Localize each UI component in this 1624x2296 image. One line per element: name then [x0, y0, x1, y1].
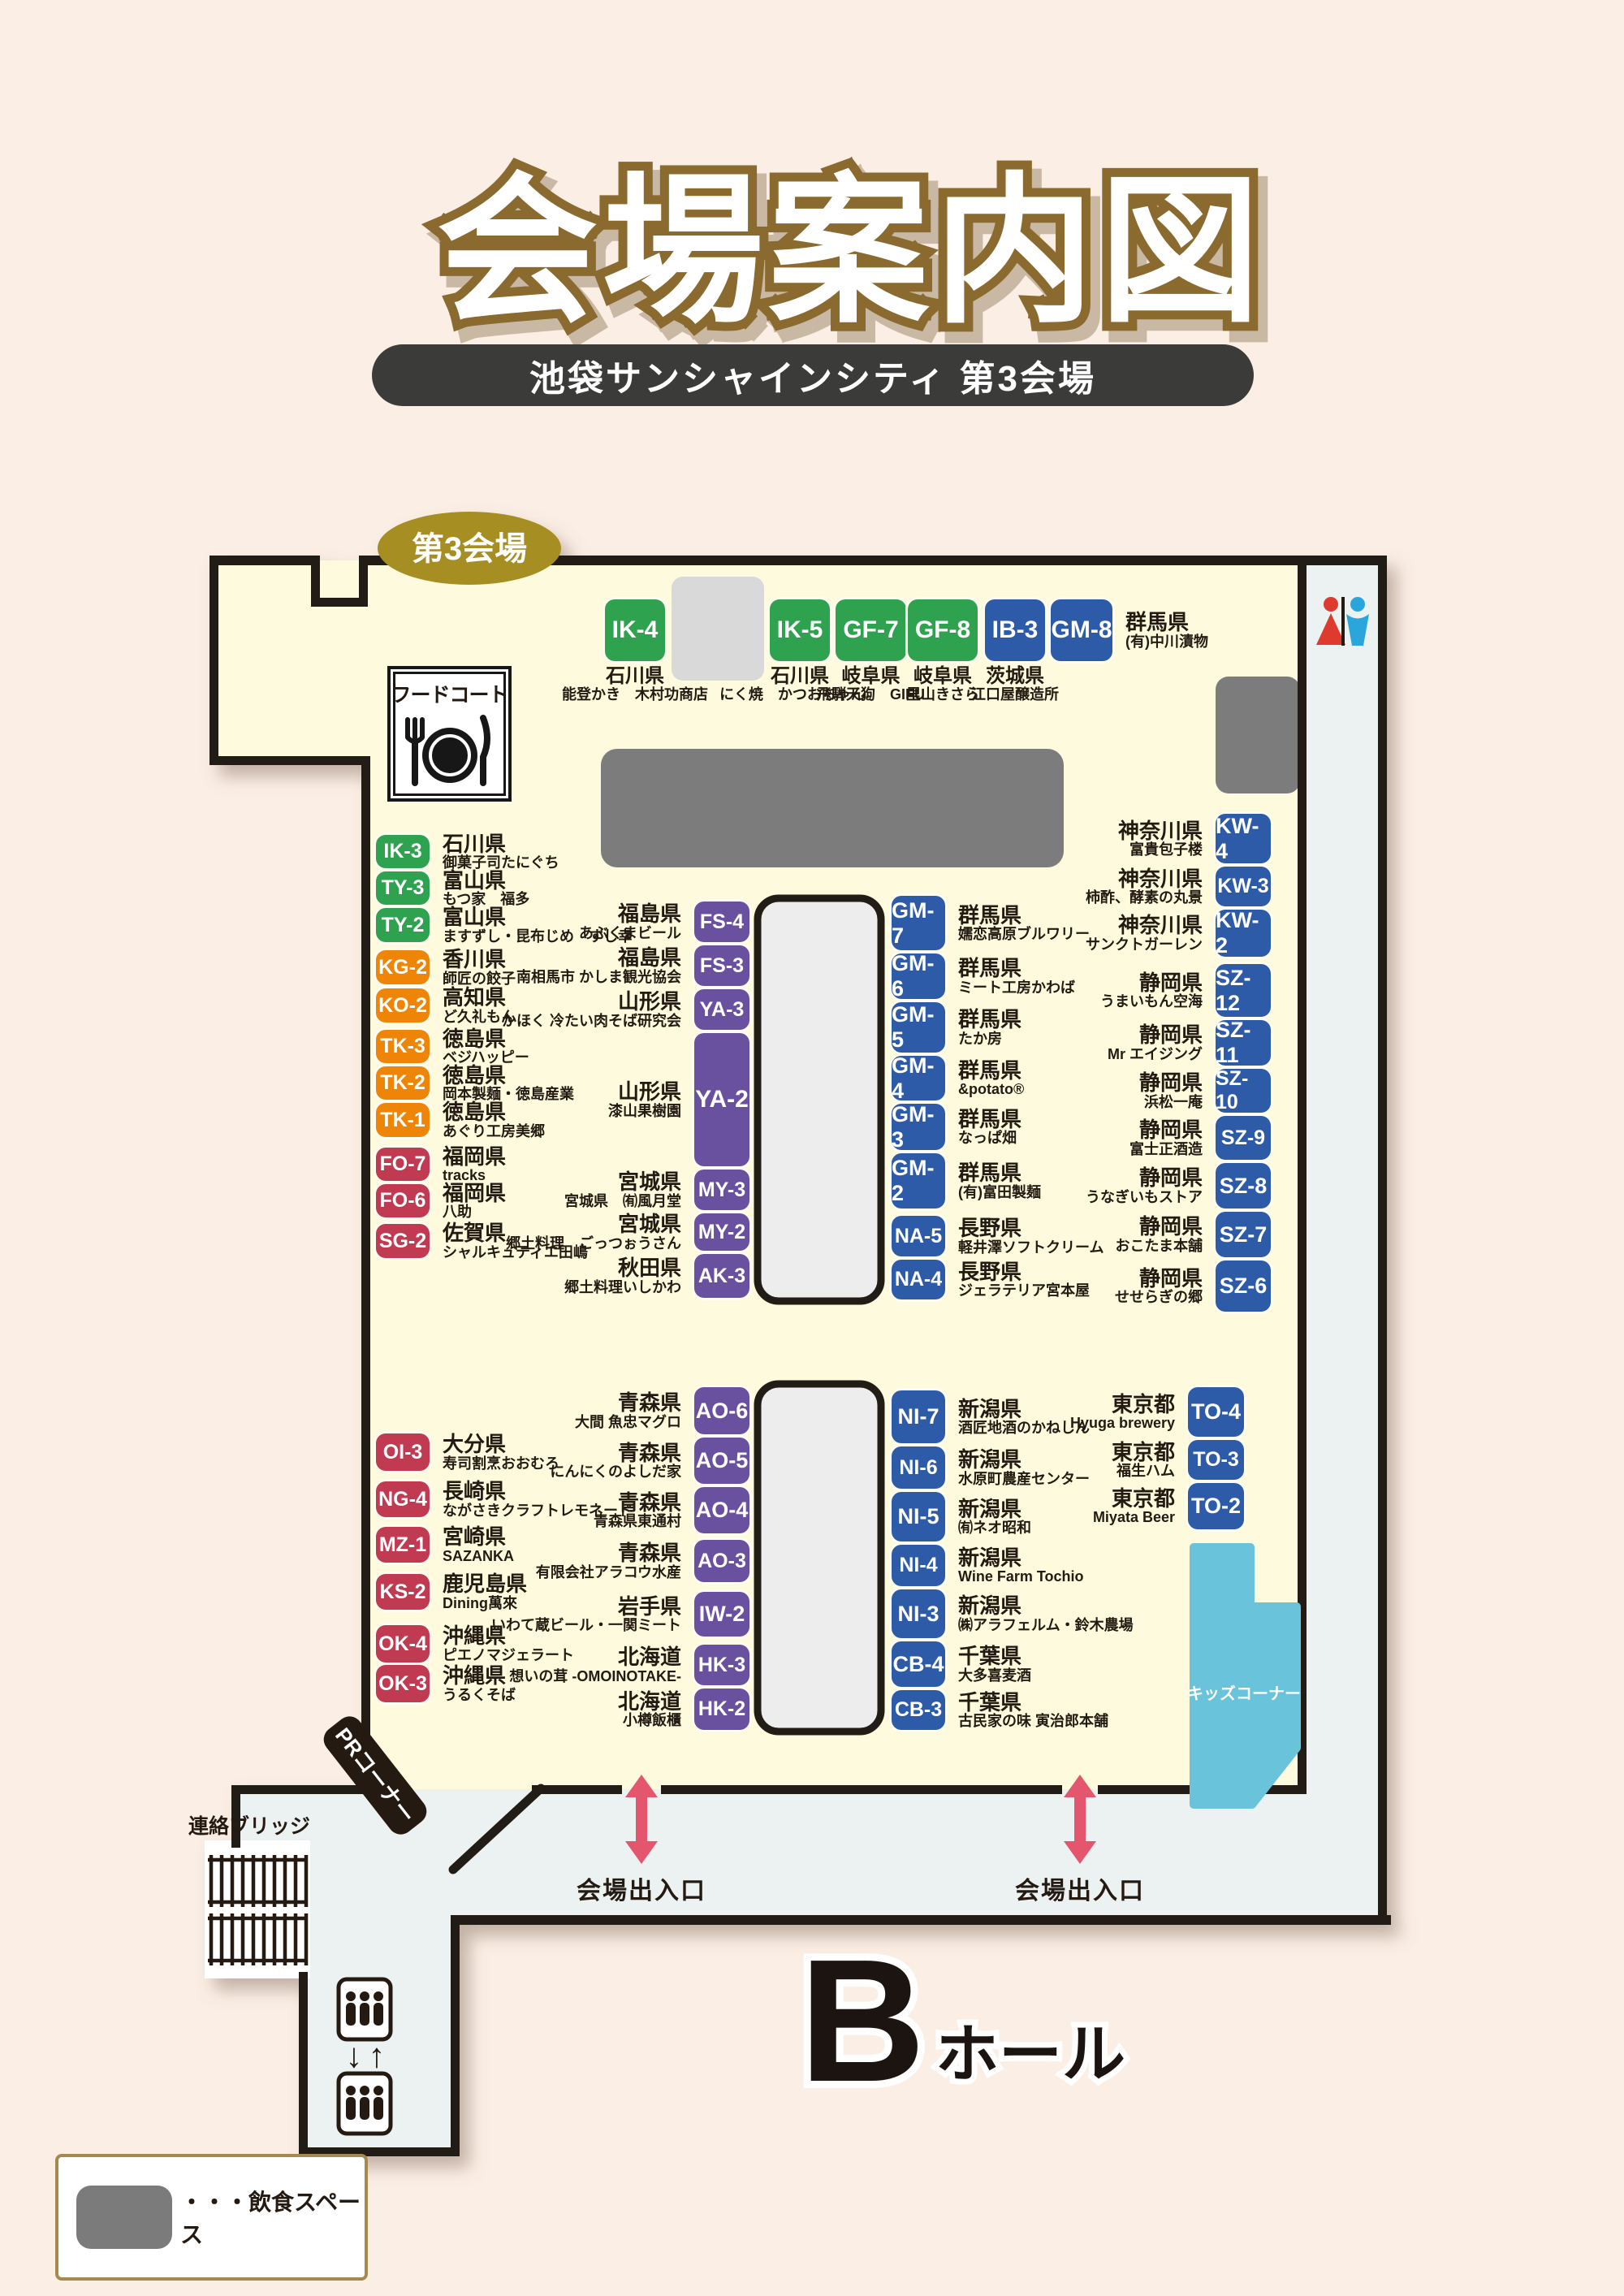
booth-label-IK-4: 石川県能登かき 木村功商店: [562, 666, 708, 703]
booth-prefecture: 静岡県: [1108, 1023, 1203, 1047]
svg-text:↓: ↓: [346, 2036, 363, 2074]
booth-OI-3[interactable]: OI-3: [376, 1433, 430, 1471]
booth-prefecture: 徳島県: [443, 1027, 529, 1050]
booth-prefecture: 群馬県: [958, 1008, 1021, 1031]
booth-label-NA-4: 長野県ジェラテリア宮本屋: [958, 1260, 1090, 1299]
floor-plan: 第3会場 キッズコーナー PRコーナー: [0, 0, 1624, 2296]
booth-AO-3[interactable]: AO-3: [694, 1540, 749, 1582]
booth-prefecture: 静岡県: [1129, 1118, 1203, 1142]
booth-shop-name: 小樽飯櫃: [618, 1713, 681, 1729]
booth-label-YA-2: 山形県漆山果樹園: [608, 1080, 681, 1119]
booth-shop-name: 水原町農産センター: [958, 1471, 1090, 1487]
booth-label-AO-5: 青森県にんにくのよしだ家: [550, 1441, 681, 1480]
booth-label-KW-4: 神奈川県富貴包子楼: [1118, 819, 1203, 858]
booth-KW-3[interactable]: KW-3: [1216, 867, 1271, 906]
venue-map-page: 会場案内図 会場案内図 池袋サンシャインシティ 第3会場: [0, 0, 1624, 2296]
booth-prefecture: 新潟県: [958, 1594, 1134, 1618]
booth-MZ-1[interactable]: MZ-1: [376, 1527, 430, 1563]
booth-prefecture: 石川県: [562, 666, 708, 687]
booth-KO-2[interactable]: KO-2: [376, 988, 430, 1023]
booth-GM-8[interactable]: GM-8: [1051, 599, 1112, 661]
booth-label-IB-3: 茨城県江口屋醸造所: [971, 666, 1059, 703]
booth-IK-3[interactable]: IK-3: [376, 835, 430, 868]
booth-shop-name: 青森県東通村: [594, 1514, 681, 1530]
booth-prefecture: 神奈川県: [1118, 819, 1203, 842]
booth-GM-7[interactable]: GM-7: [892, 896, 945, 950]
booth-prefecture: 群馬県: [958, 1107, 1021, 1131]
booth-GM-2[interactable]: GM-2: [892, 1153, 945, 1209]
booth-label-TO-4: 東京都Hyuga brewery: [1070, 1392, 1175, 1431]
booth-label-OI-3: 大分県寿司割烹おおむろ: [443, 1433, 559, 1472]
booth-prefecture: 新潟県: [958, 1497, 1031, 1520]
booth-TY-3[interactable]: TY-3: [376, 871, 430, 905]
booth-TO-4[interactable]: TO-4: [1188, 1387, 1244, 1437]
booth-KG-2[interactable]: KG-2: [376, 950, 430, 984]
booth-label-GM-8: 群馬県(有)中川漬物: [1125, 611, 1208, 650]
booth-label-AO-3: 青森県有限会社アラコウ水産: [536, 1541, 681, 1580]
booth-prefecture: 石川県: [443, 832, 559, 855]
booth-shop-name: うまいもん空海: [1100, 994, 1203, 1010]
booth-shop-name: 有限会社アラコウ水産: [536, 1564, 681, 1580]
booth-prefecture: 鹿児島県: [443, 1572, 527, 1596]
booth-prefecture: 岐阜県: [906, 666, 979, 687]
booth-shop-name: Mr エイジング: [1108, 1046, 1203, 1062]
service-room-block: [758, 1384, 881, 1732]
booth-shop-name: 江口屋醸造所: [971, 687, 1059, 703]
booth-MY-3[interactable]: MY-3: [694, 1170, 749, 1210]
booth-shop-name: 南相馬市 かしま観光協会: [516, 969, 681, 985]
booth-CB-4[interactable]: CB-4: [892, 1641, 945, 1687]
booth-prefecture: 東京都: [1093, 1486, 1175, 1510]
dining-space-block: [601, 749, 1064, 867]
booth-label-FS-4: 福島県あぶくまビール: [579, 902, 681, 941]
booth-label-OK-3: 沖縄県うるくそば: [443, 1664, 516, 1703]
booth-label-TO-3: 東京都福生ハム: [1112, 1440, 1175, 1479]
booth-prefecture: 北海道: [618, 1689, 681, 1713]
booth-label-FO-7: 福岡県tracks: [443, 1144, 506, 1183]
kids-corner-label: キッズコーナー: [1187, 1684, 1301, 1703]
booth-prefecture: 福島県: [516, 946, 681, 970]
booth-prefecture: 新潟県: [958, 1448, 1090, 1472]
booth-label-GM-3: 群馬県なっぱ畑: [958, 1107, 1021, 1146]
booth-label-TK-3: 徳島県ベジハッピー: [443, 1027, 529, 1066]
booth-prefecture: 静岡県: [1100, 971, 1203, 994]
booth-prefecture: 青森県: [536, 1541, 681, 1565]
booth-prefecture: 北海道: [509, 1645, 681, 1669]
booth-label-GM-4: 群馬県&potato®: [958, 1058, 1024, 1097]
booth-prefecture: 群馬県: [958, 1161, 1041, 1185]
booth-shop-name: ミート工房かわば: [958, 979, 1075, 996]
booth-AO-4[interactable]: AO-4: [694, 1487, 749, 1533]
booth-prefecture: 静岡県: [1139, 1071, 1203, 1095]
booth-shop-name: SAZANKA: [443, 1548, 514, 1564]
booth-TO-3[interactable]: TO-3: [1188, 1440, 1244, 1480]
booth-shop-name: うるくそば: [443, 1687, 516, 1703]
booth-IB-3[interactable]: IB-3: [985, 599, 1045, 661]
legend-box: ・・・飲食スペース: [55, 2154, 368, 2281]
booth-prefecture: 新潟県: [958, 1546, 1084, 1569]
booth-NI-3[interactable]: NI-3: [892, 1589, 945, 1638]
hall-suffix: ホール: [935, 2018, 1125, 2090]
booth-label-SZ-8: 静岡県うなぎいもストア: [1086, 1166, 1203, 1205]
booth-label-KW-2: 神奈川県サンクトガーレン: [1086, 914, 1203, 953]
corridor-right: [1302, 560, 1382, 1925]
booth-shop-name: かほく 冷たい肉そば研究会: [502, 1013, 681, 1029]
booth-KW-2[interactable]: KW-2: [1216, 910, 1271, 957]
booth-shop-name: 福生ハム: [1112, 1464, 1175, 1480]
booth-label-IW-2: 岩手県いわて蔵ビール・一関ミート: [491, 1594, 681, 1633]
booth-label-HK-3: 北海道想いの茸 -OMOINOTAKE-: [509, 1645, 681, 1684]
exit-label: 会場出入口: [1015, 1870, 1145, 1906]
dining-space-swatch: [76, 2186, 172, 2249]
booth-shop-name: 想いの茸 -OMOINOTAKE-: [509, 1668, 681, 1684]
booth-shop-name: 郷土料理 ごっつぉうさん: [506, 1235, 681, 1252]
booth-prefecture: 沖縄県: [443, 1664, 516, 1688]
booth-SZ-7[interactable]: SZ-7: [1216, 1212, 1271, 1257]
hall-letter: B: [799, 1922, 925, 2118]
booth-shop-name: おこたま本舗: [1116, 1238, 1203, 1254]
booth-shop-name: 大多喜麦酒: [958, 1667, 1031, 1684]
booth-shop-name: せせらぎの郷: [1115, 1290, 1203, 1306]
booth-label-FO-6: 福岡県八助: [443, 1181, 506, 1220]
booth-NI-7[interactable]: NI-7: [892, 1390, 945, 1443]
booth-TY-2[interactable]: TY-2: [376, 908, 430, 942]
booth-FS-3[interactable]: FS-3: [694, 945, 749, 986]
booth-label-YA-3: 山形県かほく 冷たい肉そば研究会: [502, 990, 681, 1029]
booth-label-SZ-12: 静岡県うまいもん空海: [1100, 971, 1203, 1010]
booth-prefecture: 徳島県: [443, 1063, 574, 1087]
booth-MY-2[interactable]: MY-2: [694, 1213, 749, 1251]
booth-IK-5[interactable]: IK-5: [770, 599, 830, 661]
booth-shop-name: 嬬恋高原ブルワリー: [958, 927, 1090, 943]
booth-label-MZ-1: 宮崎県SAZANKA: [443, 1525, 514, 1564]
booth-prefecture: 静岡県: [1115, 1266, 1203, 1290]
exit-label: 会場出入口: [577, 1870, 706, 1906]
booth-SZ-11[interactable]: SZ-11: [1216, 1020, 1271, 1066]
booth-GM-5[interactable]: GM-5: [892, 1002, 945, 1053]
booth-label-AO-6: 青森県大間 魚忠マグロ: [575, 1391, 681, 1430]
booth-KS-2[interactable]: KS-2: [376, 1574, 430, 1610]
booth-label-GM-7: 群馬県嬬恋高原ブルワリー: [958, 903, 1090, 942]
booth-label-TY-3: 富山県もつ家 福多: [443, 868, 529, 907]
booth-label-TK-1: 徳島県あぐり工房美郷: [443, 1100, 545, 1139]
booth-shop-name: いわて蔵ビール・一関ミート: [491, 1618, 681, 1634]
booth-AO-5[interactable]: AO-5: [694, 1438, 749, 1484]
booth-label-GM-6: 群馬県ミート工房かわば: [958, 957, 1075, 996]
booth-AK-3[interactable]: AK-3: [694, 1254, 749, 1298]
booth-YA-3[interactable]: YA-3: [694, 989, 749, 1030]
booth-OK-3[interactable]: OK-3: [376, 1665, 430, 1702]
booth-SZ-8[interactable]: SZ-8: [1216, 1163, 1271, 1209]
booth-label-IK-3: 石川県御菓子司たにぐち: [443, 832, 559, 871]
booth-label-MY-3: 宮城県宮城県 ㈲風月堂: [564, 1170, 681, 1209]
booth-label-CB-3: 千葉県古民家の味 寅治郎本舗: [958, 1690, 1108, 1729]
hall-annex-floor: [214, 560, 368, 760]
booth-shop-name: 富貴包子楼: [1118, 842, 1203, 858]
booth-prefecture: 青森県: [575, 1391, 681, 1415]
booth-NI-5[interactable]: NI-5: [892, 1492, 945, 1541]
booth-shop-name: 古民家の味 寅治郎本舗: [958, 1714, 1108, 1730]
booth-shop-name: 寿司割烹おおむろ: [443, 1455, 559, 1472]
booth-shop-name: 漆山果樹園: [608, 1103, 681, 1119]
svg-text:↑: ↑: [369, 2036, 386, 2074]
booth-shop-name: 柿酢、酵素の丸景: [1086, 890, 1203, 906]
dining-space-block: [672, 577, 764, 681]
booth-label-TK-2: 徳島県岡本製麺・徳島産業: [443, 1063, 574, 1102]
bridge-label: 連絡ブリッジ: [188, 1810, 310, 1840]
booth-prefecture: 長野県: [958, 1217, 1104, 1240]
booth-shop-name: 浜松一庵: [1139, 1094, 1203, 1110]
booth-FO-7[interactable]: FO-7: [376, 1148, 430, 1181]
booth-NA-5[interactable]: NA-5: [892, 1216, 945, 1256]
booth-label-NI-5: 新潟県㈲ネオ昭和: [958, 1497, 1031, 1536]
booth-NA-4[interactable]: NA-4: [892, 1260, 945, 1299]
booth-label-NI-4: 新潟県Wine Farm Tochio: [958, 1546, 1084, 1585]
booth-shop-name: (有)中川漬物: [1125, 633, 1208, 650]
booth-shop-name: Wine Farm Tochio: [958, 1569, 1084, 1585]
booth-shop-name: (有)富田製麺: [958, 1184, 1041, 1200]
booth-label-NI-3: 新潟県㈱アラフェルム・鈴木農場: [958, 1594, 1134, 1633]
booth-shop-name: Miyata Beer: [1093, 1510, 1175, 1526]
booth-prefecture: 福岡県: [443, 1144, 506, 1168]
booth-shop-name: 能登かき 木村功商店: [562, 687, 708, 703]
booth-label-KG-2: 香川県師匠の餃子: [443, 948, 516, 987]
booth-shop-name: 宮城県 ㈲風月堂: [564, 1193, 681, 1209]
booth-GM-3[interactable]: GM-3: [892, 1104, 945, 1150]
booth-HK-3[interactable]: HK-3: [694, 1645, 749, 1685]
booth-FS-4[interactable]: FS-4: [694, 902, 749, 942]
booth-shop-name: ジェラテリア宮本屋: [958, 1283, 1090, 1299]
food-court-label: フードコート: [391, 679, 508, 708]
booth-label-NA-5: 長野県軽井澤ソフトクリーム: [958, 1217, 1104, 1256]
booth-label-AK-3: 秋田県郷土料理いしかわ: [564, 1256, 681, 1295]
booth-prefecture: 富山県: [443, 868, 529, 892]
booth-prefecture: 福島県: [579, 902, 681, 926]
booth-prefecture: 秋田県: [564, 1256, 681, 1280]
booth-shop-name: たか房: [958, 1031, 1021, 1047]
booth-GM-6[interactable]: GM-6: [892, 953, 945, 999]
booth-shop-name: 軽井澤ソフトクリーム: [958, 1239, 1104, 1256]
booth-label-AO-4: 青森県青森県東通村: [594, 1490, 681, 1529]
booth-SG-2[interactable]: SG-2: [376, 1224, 430, 1258]
booth-GM-4[interactable]: GM-4: [892, 1056, 945, 1100]
booth-label-TO-2: 東京都Miyata Beer: [1093, 1486, 1175, 1525]
booth-prefecture: 東京都: [1070, 1392, 1175, 1416]
booth-shop-name: ㈲ネオ昭和: [958, 1520, 1031, 1537]
booth-shop-name: サンクトガーレン: [1086, 936, 1203, 953]
booth-GF-8[interactable]: GF-8: [908, 599, 978, 661]
booth-KW-4[interactable]: KW-4: [1216, 814, 1271, 863]
booth-prefecture: 千葉県: [958, 1645, 1031, 1668]
booth-shop-name: なっぱ畑: [958, 1131, 1021, 1147]
booth-shop-name: Hyuga brewery: [1070, 1416, 1175, 1432]
booth-IK-4[interactable]: IK-4: [605, 599, 665, 661]
booth-prefecture: 群馬県: [958, 903, 1090, 927]
booth-prefecture: 群馬県: [958, 1058, 1024, 1082]
booth-prefecture: 宮崎県: [443, 1525, 514, 1549]
booth-prefecture: 山形県: [608, 1080, 681, 1104]
booth-GF-7[interactable]: GF-7: [836, 599, 906, 661]
booth-shop-name: 富士正酒造: [1129, 1141, 1203, 1157]
booth-label-NI-6: 新潟県水原町農産センター: [958, 1448, 1090, 1487]
booth-label-SZ-6: 静岡県せせらぎの郷: [1115, 1266, 1203, 1305]
dining-space-block: [1216, 677, 1300, 793]
booth-label-SZ-10: 静岡県浜松一庵: [1139, 1071, 1203, 1110]
legend-label: ・・・飲食スペース: [180, 2185, 365, 2250]
booth-FO-6[interactable]: FO-6: [376, 1184, 430, 1217]
booth-HK-2[interactable]: HK-2: [694, 1688, 749, 1730]
booth-label-HK-2: 北海道小樽飯櫃: [618, 1689, 681, 1728]
booth-prefecture: 神奈川県: [1086, 914, 1203, 937]
venue-badge-label: 第3会場: [412, 531, 527, 567]
cutlery-icon: [399, 708, 501, 796]
booth-NG-4[interactable]: NG-4: [376, 1481, 430, 1517]
booth-prefecture: 宮城県: [506, 1213, 681, 1236]
food-court-sign: フードコート: [387, 666, 512, 802]
booth-label-CB-4: 千葉県大多喜麦酒: [958, 1645, 1031, 1684]
booth-OK-4[interactable]: OK-4: [376, 1625, 430, 1663]
booth-prefecture: 青森県: [550, 1441, 681, 1464]
booth-SZ-10[interactable]: SZ-10: [1216, 1069, 1271, 1113]
booth-shop-name: 郷土料理いしかわ: [564, 1279, 681, 1295]
booth-TO-2[interactable]: TO-2: [1188, 1483, 1244, 1529]
booth-label-SZ-11: 静岡県Mr エイジング: [1108, 1023, 1203, 1062]
booth-shop-name: にんにくのよしだ家: [550, 1464, 681, 1481]
booth-prefecture: 山形県: [502, 990, 681, 1014]
booth-shop-name: 八助: [443, 1204, 506, 1221]
booth-label-GM-2: 群馬県(有)富田製麺: [958, 1161, 1041, 1200]
booth-prefecture: 静岡県: [1116, 1215, 1203, 1239]
booth-prefecture: 神奈川県: [1086, 867, 1203, 890]
booth-CB-3[interactable]: CB-3: [892, 1690, 945, 1730]
booth-IW-2[interactable]: IW-2: [694, 1592, 749, 1637]
booth-prefecture: 千葉県: [958, 1690, 1108, 1714]
booth-NI-6[interactable]: NI-6: [892, 1446, 945, 1489]
booth-label-KW-3: 神奈川県柿酢、酵素の丸景: [1086, 867, 1203, 906]
booth-label-GM-5: 群馬県たか房: [958, 1008, 1021, 1047]
booth-YA-2[interactable]: YA-2: [694, 1033, 749, 1166]
booth-shop-name: ㈱アラフェルム・鈴木農場: [958, 1617, 1134, 1633]
booth-TK-2[interactable]: TK-2: [376, 1066, 430, 1100]
booth-prefecture: 宮城県: [564, 1170, 681, 1194]
booth-prefecture: 静岡県: [1086, 1166, 1203, 1190]
booth-shop-name: &potato®: [958, 1082, 1024, 1098]
booth-label-MY-2: 宮城県郷土料理 ごっつぉうさん: [506, 1213, 681, 1252]
booth-TK-1[interactable]: TK-1: [376, 1103, 430, 1137]
booth-shop-name: あぐり工房美郷: [443, 1123, 545, 1139]
booth-AO-6[interactable]: AO-6: [694, 1387, 749, 1434]
booth-shop-name: 里山きさら: [906, 687, 979, 703]
booth-prefecture: 茨城県: [971, 666, 1059, 687]
booth-label-GF-8: 岐阜県里山きさら: [906, 666, 979, 703]
booth-shop-name: うなぎいもストア: [1086, 1189, 1203, 1205]
booth-shop-name: 大間 魚忠マグロ: [575, 1414, 681, 1430]
booth-shop-name: あぶくまビール: [579, 925, 681, 941]
booth-prefecture: 青森県: [594, 1490, 681, 1514]
booth-prefecture: 徳島県: [443, 1100, 545, 1124]
booth-label-SZ-9: 静岡県富士正酒造: [1129, 1118, 1203, 1157]
booth-prefecture: 岩手県: [491, 1594, 681, 1618]
booth-prefecture: 大分県: [443, 1433, 559, 1456]
booth-TK-3[interactable]: TK-3: [376, 1030, 430, 1063]
booth-label-SZ-7: 静岡県おこたま本舗: [1116, 1215, 1203, 1254]
booth-NI-4[interactable]: NI-4: [892, 1545, 945, 1586]
booth-prefecture: 群馬県: [958, 957, 1075, 980]
booth-prefecture: 香川県: [443, 948, 516, 971]
booth-prefecture: 福岡県: [443, 1181, 506, 1204]
booth-SZ-12[interactable]: SZ-12: [1216, 964, 1271, 1017]
booth-prefecture: 東京都: [1112, 1440, 1175, 1464]
hall-name: B ホール: [799, 1922, 1125, 2118]
booth-prefecture: 長野県: [958, 1260, 1090, 1283]
booth-label-FS-3: 福島県南相馬市 かしま観光協会: [516, 946, 681, 985]
booth-prefecture: 群馬県: [1125, 611, 1208, 634]
service-room-block: [758, 898, 881, 1301]
booth-SZ-6[interactable]: SZ-6: [1216, 1260, 1271, 1312]
booth-SZ-9[interactable]: SZ-9: [1216, 1116, 1271, 1160]
